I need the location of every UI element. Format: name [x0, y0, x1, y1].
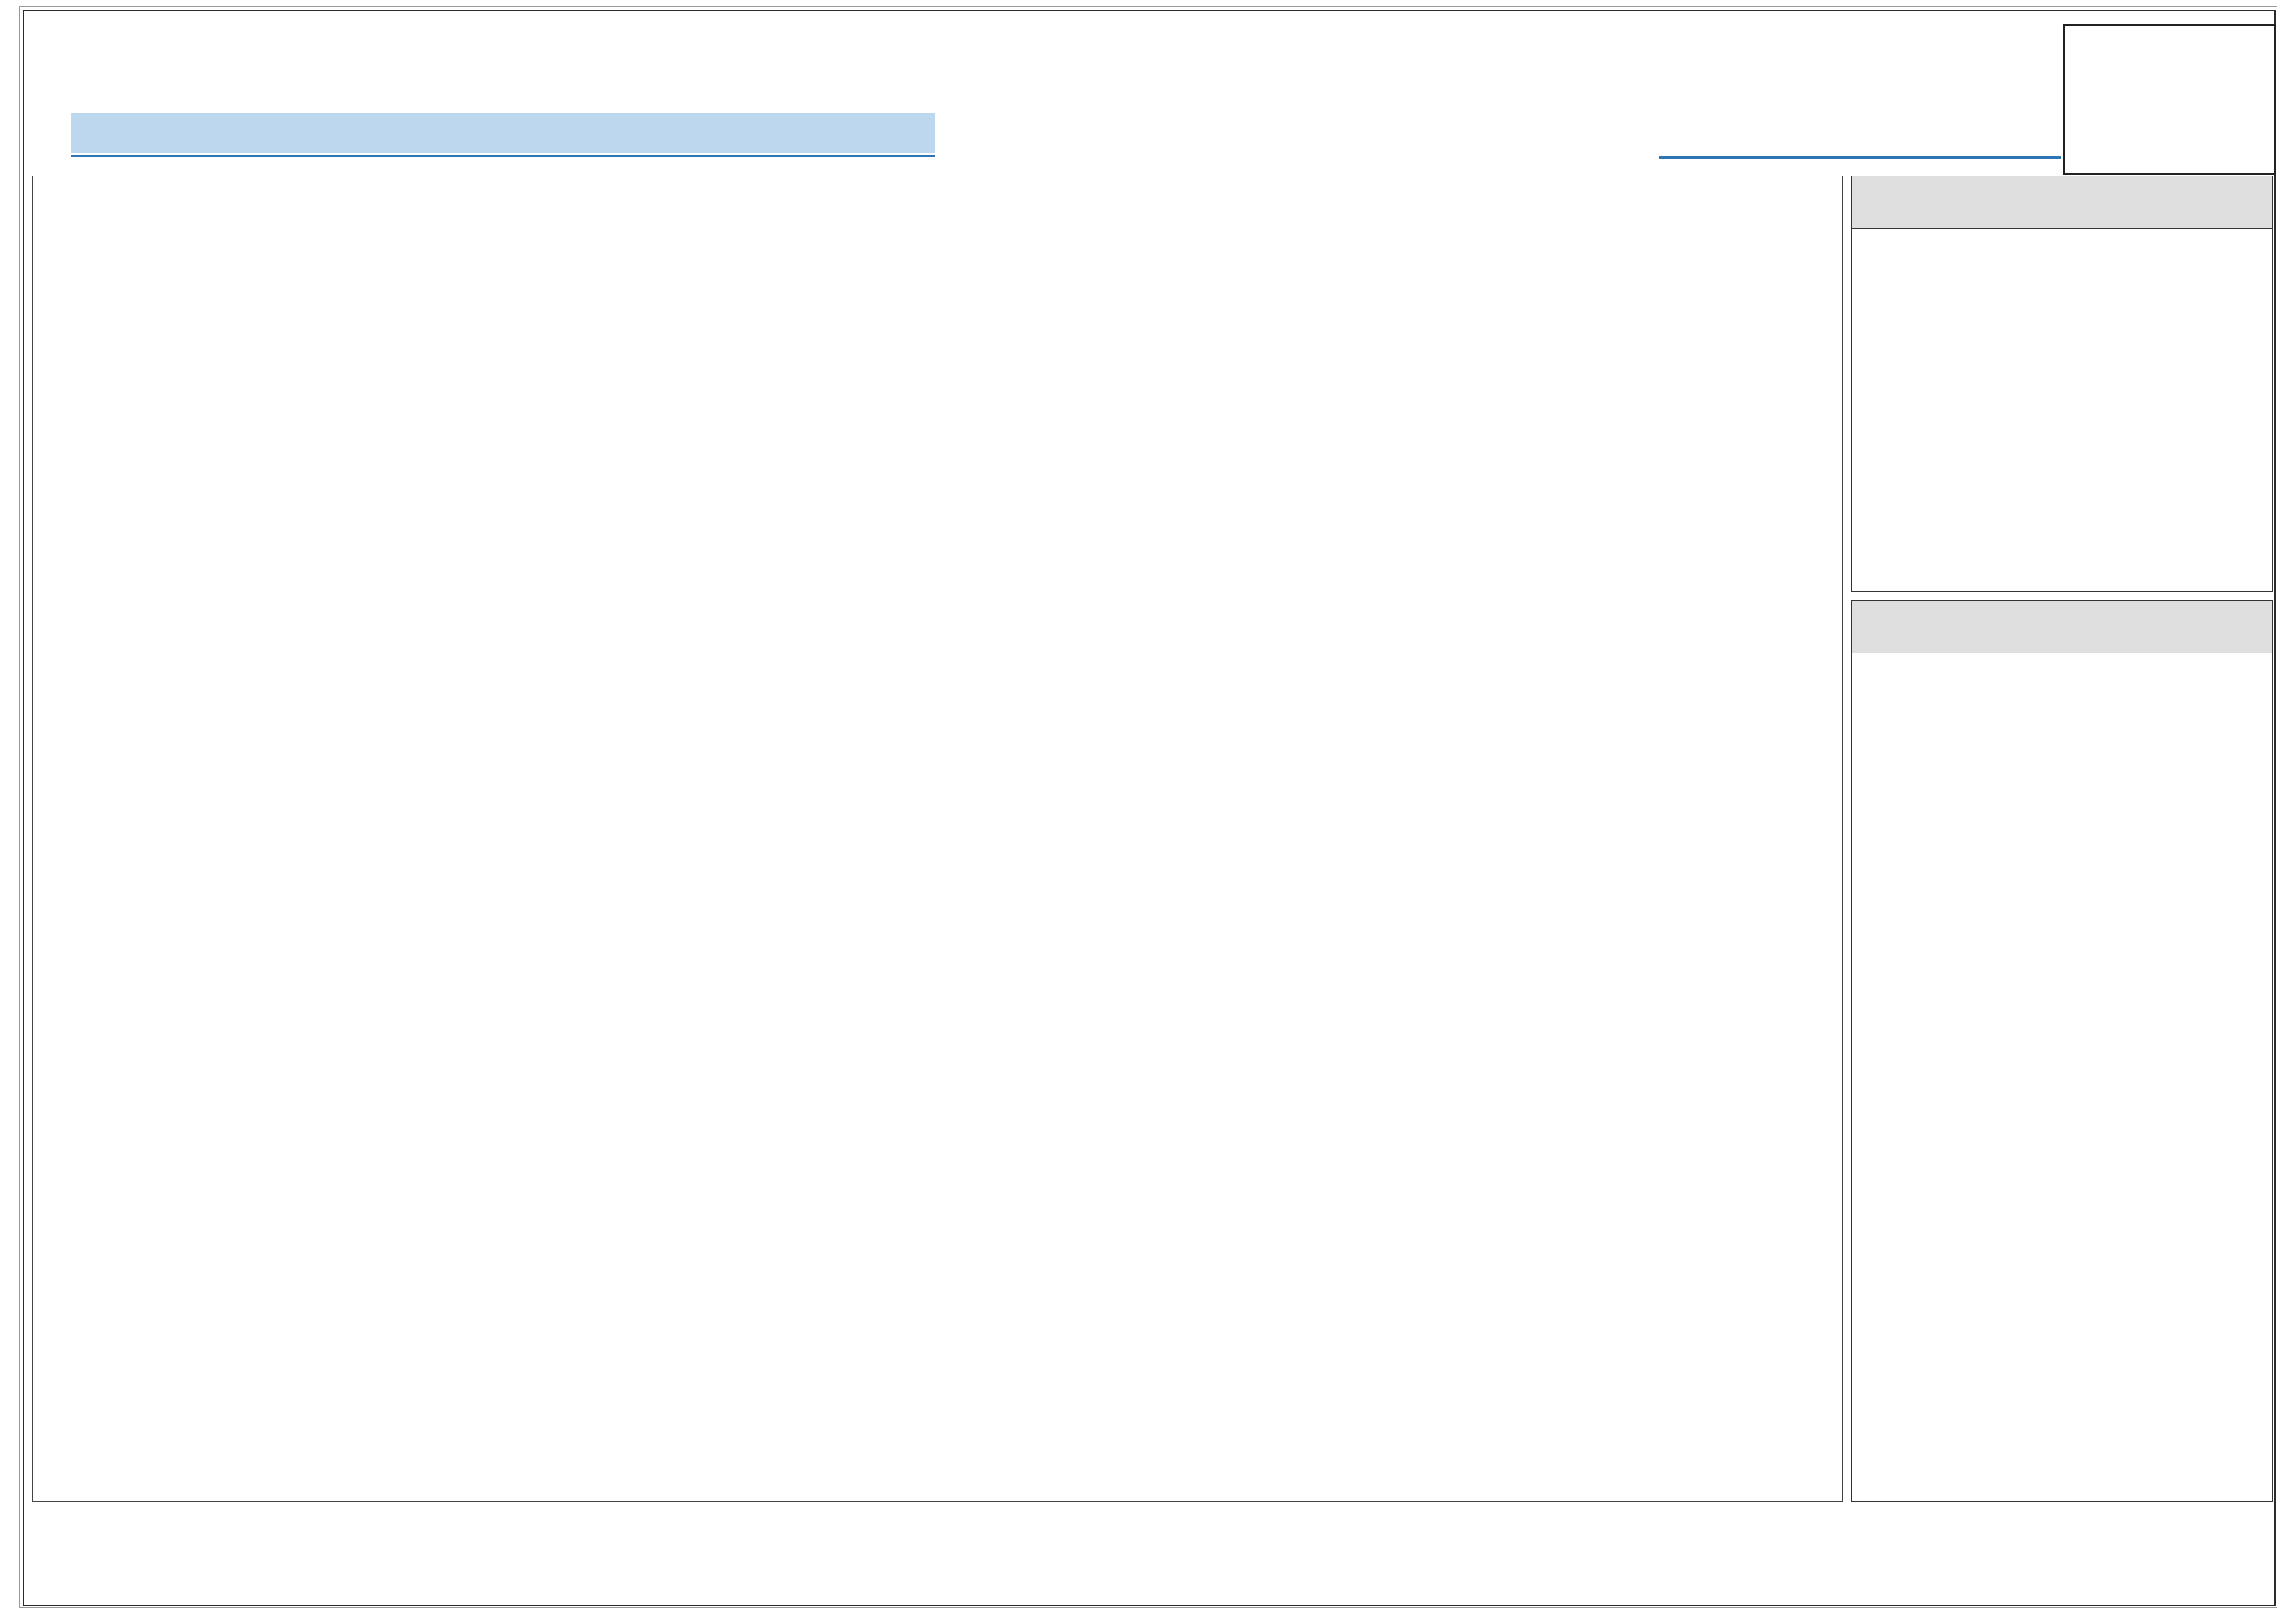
sheet-number-box: [2063, 24, 2276, 175]
map-canvas: [33, 176, 1842, 1501]
wind-rose: [1852, 229, 2269, 590]
subtitle-band: [71, 113, 935, 153]
map-frame: [32, 176, 1843, 1502]
sheet-label-rule: [1659, 156, 2061, 159]
legend-title: [1852, 601, 2272, 653]
plan-sheet: [0, 0, 2296, 1621]
windrose-panel: [1851, 176, 2273, 592]
windrose-panel-title: [1852, 176, 2272, 229]
legend-panel: [1851, 600, 2273, 1502]
subtitle-rule: [71, 155, 935, 157]
